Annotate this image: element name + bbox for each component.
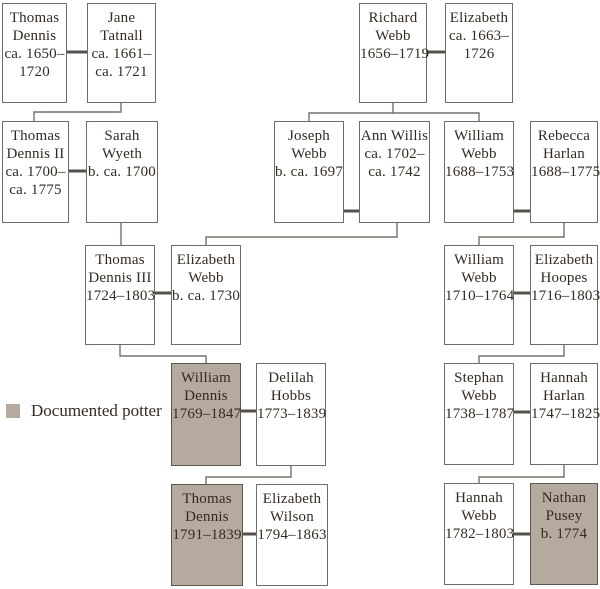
person-text-line: Jane <box>88 9 155 27</box>
family-tree-diagram: ThomasDennisca. 1650–1720 JaneTatnallca.… <box>0 0 600 589</box>
person-box-ann-willis: Ann Willisca. 1702–ca. 1742 <box>359 121 430 223</box>
person-box-richard-webb: RichardWebb1656–1719 <box>359 3 427 103</box>
person-text-line: ca. 1661– <box>88 45 155 63</box>
person-box-thomas-dennis-ii: ThomasDennis IIca. 1700–ca. 1775 <box>2 121 69 223</box>
person-text-line: Dennis <box>172 387 240 405</box>
person-text-line: Harlan <box>531 387 597 405</box>
person-box-jane-tatnall: JaneTatnallca. 1661–ca. 1721 <box>87 3 156 103</box>
person-text-line: Elizabeth <box>446 9 512 27</box>
person-text-line: Pusey <box>531 507 597 525</box>
person-text-line: Dennis II <box>3 145 68 163</box>
person-text-line: ca. 1742 <box>360 163 429 181</box>
person-text-line: Elizabeth <box>531 251 597 269</box>
person-text-line: ca. 1702– <box>360 145 429 163</box>
person-box-hannah-webb: HannahWebb1782–1803 <box>444 483 514 585</box>
person-text-line: b. ca. 1697 <box>275 163 343 181</box>
person-text-line: Webb <box>360 27 426 45</box>
person-box-elizabeth-wilson: ElizabethWilson1794–1863 <box>256 484 328 586</box>
person-text-line: 1773–1839 <box>257 405 325 423</box>
person-text-line: ca. 1663– <box>446 27 512 45</box>
person-text-line: Elizabeth <box>257 490 327 508</box>
person-text-line: Hannah <box>531 369 597 387</box>
person-text-line: Dennis <box>3 27 66 45</box>
person-text-line: Dennis <box>172 508 242 526</box>
person-box-thomas-dennis-iii: ThomasDennis III1724–1803 <box>85 245 155 345</box>
person-text-line: 1656–1719 <box>360 45 426 63</box>
person-text-line: Hannah <box>445 489 513 507</box>
person-box-elizabeth-webb: ElizabethWebbb. ca. 1730 <box>171 245 241 345</box>
person-text-line: ca. 1721 <box>88 63 155 81</box>
person-box-delilah-hobbs: DelilahHobbs1773–1839 <box>256 363 326 466</box>
person-text-line: Wilson <box>257 508 327 526</box>
person-text-line: Wyeth <box>87 145 157 163</box>
person-text-line: Thomas <box>86 251 154 269</box>
legend-swatch-documented-potter <box>6 404 20 418</box>
person-text-line: Webb <box>445 387 513 405</box>
person-text-line: Hoopes <box>531 269 597 287</box>
person-text-line: Stephan <box>445 369 513 387</box>
person-text-line: b. ca. 1730 <box>172 287 240 305</box>
person-box-rebecca-harlan: RebeccaHarlan1688–1775 <box>530 121 598 223</box>
person-text-line: 1791–1839 <box>172 526 242 544</box>
person-text-line: b. 1774 <box>531 525 597 543</box>
person-text-line: 1769–1847 <box>172 405 240 423</box>
person-text-line: William <box>445 127 513 145</box>
person-text-line: Tatnall <box>88 27 155 45</box>
person-text-line: Harlan <box>531 145 597 163</box>
person-text-line: 1720 <box>3 63 66 81</box>
person-text-line: 1710–1764 <box>445 287 513 305</box>
person-text-line: ca. 1700– <box>3 163 68 181</box>
person-text-line: 1738–1787 <box>445 405 513 423</box>
person-box-hannah-harlan: HannahHarlan1747–1825 <box>530 363 598 465</box>
legend-label: Documented potter <box>31 402 162 419</box>
legend: Documented potter <box>6 402 162 419</box>
person-text-line: Delilah <box>257 369 325 387</box>
person-text-line: Webb <box>445 145 513 163</box>
person-text-line: Joseph <box>275 127 343 145</box>
person-text-line: ca. 1775 <box>3 181 68 199</box>
person-text-line: 1688–1775 <box>531 163 597 181</box>
person-box-stephan-webb: StephanWebb1738–1787 <box>444 363 514 465</box>
person-text-line: 1726 <box>446 45 512 63</box>
person-box-william-webb-1710: WilliamWebb1710–1764 <box>444 245 514 345</box>
person-text-line: Thomas <box>3 9 66 27</box>
person-box-william-webb-1688: WilliamWebb1688–1753 <box>444 121 514 223</box>
person-box-elizabeth-hoopes: ElizabethHoopes1716–1803 <box>530 245 598 345</box>
person-text-line: Webb <box>172 269 240 287</box>
person-text-line: Richard <box>360 9 426 27</box>
person-text-line: 1688–1753 <box>445 163 513 181</box>
person-text-line: Sarah <box>87 127 157 145</box>
person-text-line: Rebecca <box>531 127 597 145</box>
person-box-sarah-wyeth: SarahWyethb. ca. 1700 <box>86 121 158 223</box>
person-text-line: Ann Willis <box>360 127 429 145</box>
person-text-line: Elizabeth <box>172 251 240 269</box>
person-box-thomas-dennis-1791: ThomasDennis1791–1839 <box>171 484 243 586</box>
person-text-line: ca. 1650– <box>3 45 66 63</box>
person-box-joseph-webb: JosephWebbb. ca. 1697 <box>274 121 344 223</box>
person-text-line: 1794–1863 <box>257 526 327 544</box>
person-text-line: 1716–1803 <box>531 287 597 305</box>
person-text-line: Webb <box>445 507 513 525</box>
person-text-line: William <box>445 251 513 269</box>
person-text-line: b. ca. 1700 <box>87 163 157 181</box>
person-box-thomas-dennis-1650: ThomasDennisca. 1650–1720 <box>2 3 67 103</box>
person-text-line: 1747–1825 <box>531 405 597 423</box>
person-text-line: Webb <box>445 269 513 287</box>
person-text-line: William <box>172 369 240 387</box>
person-text-line: Dennis III <box>86 269 154 287</box>
person-box-elizabeth-1663: Elizabethca. 1663–1726 <box>445 3 513 103</box>
person-text-line: Webb <box>275 145 343 163</box>
person-text-line: Nathan <box>531 489 597 507</box>
person-text-line: Thomas <box>172 490 242 508</box>
person-box-nathan-pusey: NathanPuseyb. 1774 <box>530 483 598 585</box>
person-text-line: 1724–1803 <box>86 287 154 305</box>
person-text-line: Thomas <box>3 127 68 145</box>
person-box-william-dennis: WilliamDennis1769–1847 <box>171 363 241 466</box>
person-text-line: 1782–1803 <box>445 525 513 543</box>
person-text-line: Hobbs <box>257 387 325 405</box>
